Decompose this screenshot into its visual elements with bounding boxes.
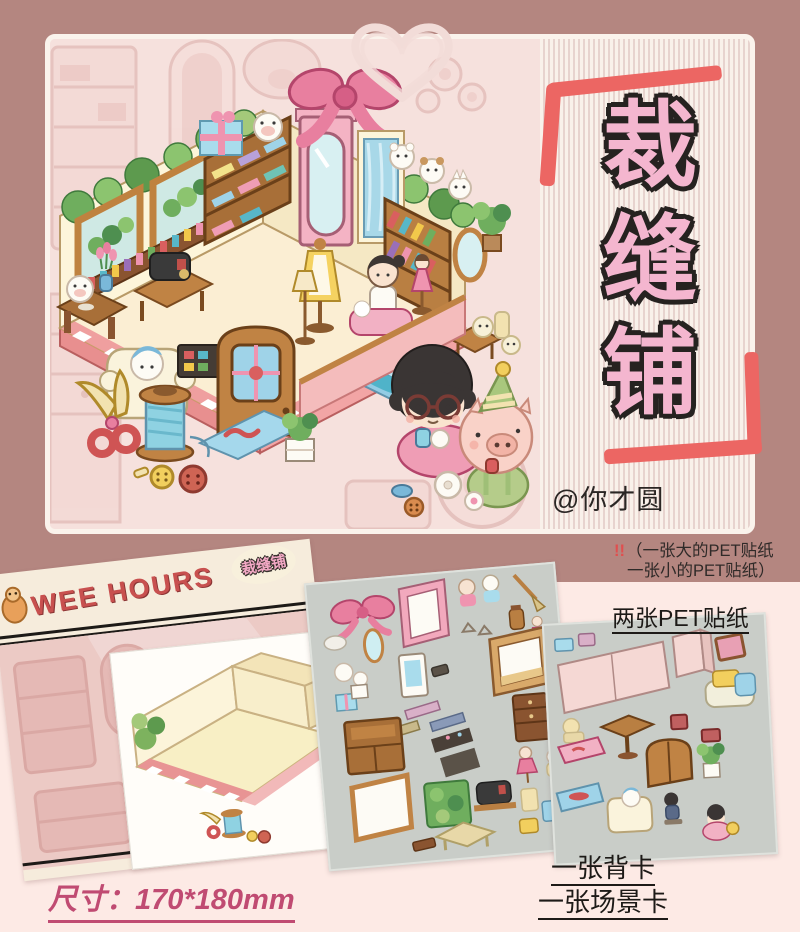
oval-mirror-icon bbox=[455, 230, 485, 280]
sticker-phone-icon bbox=[431, 664, 449, 677]
pet-sticker-sheet-large bbox=[304, 562, 580, 872]
sticker-wall-corner-icon bbox=[672, 629, 714, 677]
sticker-small-girl-icon bbox=[663, 792, 683, 825]
sticker-plant-pot-icon bbox=[696, 743, 726, 778]
sticker-wall-strip-icon bbox=[557, 642, 670, 714]
mascot-icon bbox=[0, 583, 33, 627]
pet-sticker-sheet-small bbox=[542, 612, 778, 865]
sticker-doll-lamp-icon bbox=[515, 746, 538, 784]
sticker-plant-panel-icon bbox=[424, 780, 472, 828]
label-pet-sheets: 两张PET贴纸 bbox=[612, 599, 749, 633]
sticker-frames-small-icon bbox=[554, 633, 595, 651]
title-char: 铺 bbox=[603, 323, 697, 423]
sticker-armchair-cat-icon bbox=[607, 787, 653, 833]
heart-scribble-icon bbox=[334, 14, 470, 118]
sticker-cloud-icon bbox=[324, 635, 347, 651]
label-size: 尺寸：170*180mm bbox=[48, 876, 295, 923]
sticker-gift-boxes-icon bbox=[335, 684, 369, 711]
sticker-sheet-large-art bbox=[306, 564, 574, 865]
sticker-gold-frame-icon bbox=[351, 775, 412, 840]
brand-logo: WEE HOURS bbox=[29, 561, 216, 622]
sticker-sheet-small-art bbox=[544, 615, 772, 860]
sticker-arch-door-icon bbox=[646, 738, 692, 786]
sticker-sitting-girl-icon bbox=[702, 803, 740, 841]
exclamation-icon: !! bbox=[614, 542, 625, 560]
sticker-bow-icon bbox=[327, 591, 399, 639]
sticker-wardrobe-icon bbox=[399, 653, 429, 697]
sticker-sewing-machine-icon bbox=[472, 780, 516, 812]
pet-sticker-note: !!（一张大的PET贴纸 一张小的PET贴纸） bbox=[614, 541, 784, 581]
sticker-cabinet-icon bbox=[344, 718, 404, 775]
sticker-mirror-icon bbox=[363, 629, 384, 662]
sticker-tiny-chair-icon bbox=[563, 718, 584, 743]
artist-credit: @你才圆 bbox=[552, 478, 664, 517]
sticker-hangers-icon bbox=[462, 621, 491, 635]
poster: 裁 缝 铺 @你才圆 !!（一张大的PET贴纸 一张小的PET贴纸） WEE H… bbox=[0, 0, 800, 932]
sticker-sofa-icon bbox=[705, 669, 757, 708]
sticker-pattern-strips-icon bbox=[430, 727, 481, 778]
buttons-icon bbox=[133, 466, 206, 492]
plush-pig-icon bbox=[254, 113, 282, 141]
note-line1: !!（一张大的PET贴纸 bbox=[614, 541, 784, 561]
title-char: 裁 bbox=[603, 96, 697, 196]
sticker-jar-icon bbox=[509, 605, 525, 630]
sticker-pink-door-icon bbox=[398, 579, 449, 647]
product-title: 裁 缝 铺 bbox=[580, 96, 720, 423]
sticker-dresser-icon bbox=[512, 693, 550, 742]
sticker-dolls-icon bbox=[458, 575, 500, 607]
sticker-picture-frame-icon bbox=[715, 634, 745, 661]
label-back-card: 一张背卡 bbox=[528, 848, 678, 885]
mini-spool-scissors-icon bbox=[201, 805, 271, 849]
shop-badge: 裁缝铺 bbox=[228, 540, 299, 589]
label-scene-card: 一张场景卡 bbox=[512, 882, 694, 919]
note-line2: 一张小的PET贴纸） bbox=[627, 561, 784, 581]
sticker-tray-icon bbox=[412, 838, 436, 852]
title-char: 缝 bbox=[603, 210, 697, 310]
sticker-blue-sign-icon bbox=[556, 783, 603, 811]
